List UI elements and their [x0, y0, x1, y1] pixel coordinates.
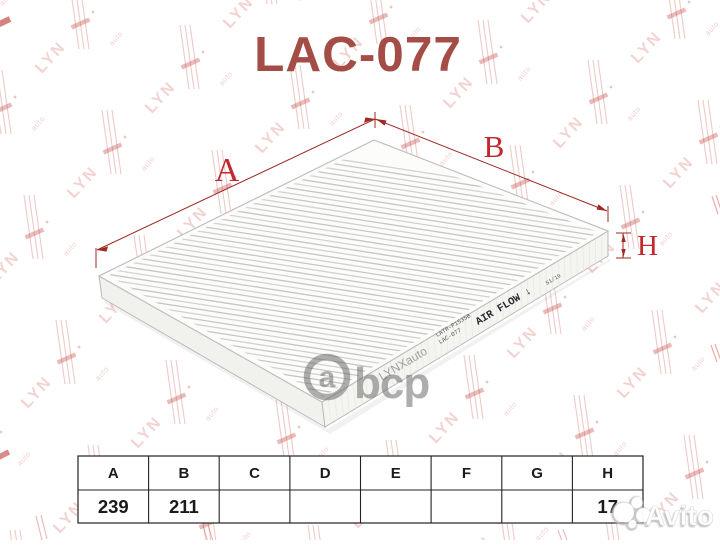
svg-text:A: A: [215, 152, 240, 189]
svg-text:B: B: [484, 129, 505, 164]
svg-text:Avito: Avito: [645, 500, 714, 531]
svg-text:B: B: [178, 465, 189, 482]
svg-text:H: H: [637, 230, 658, 262]
svg-text:a: a: [319, 361, 336, 394]
svg-text:D: D: [320, 465, 331, 482]
svg-text:E: E: [391, 465, 401, 482]
svg-text:211: 211: [169, 496, 199, 517]
svg-text:C: C: [249, 465, 260, 482]
svg-text:239: 239: [98, 496, 129, 517]
svg-text:bcp: bcp: [354, 359, 429, 408]
svg-text:LAC-077: LAC-077: [254, 27, 462, 82]
svg-text:H: H: [602, 465, 613, 482]
svg-text:G: G: [531, 465, 543, 482]
svg-text:A: A: [108, 465, 119, 482]
svg-text:F: F: [462, 465, 471, 482]
